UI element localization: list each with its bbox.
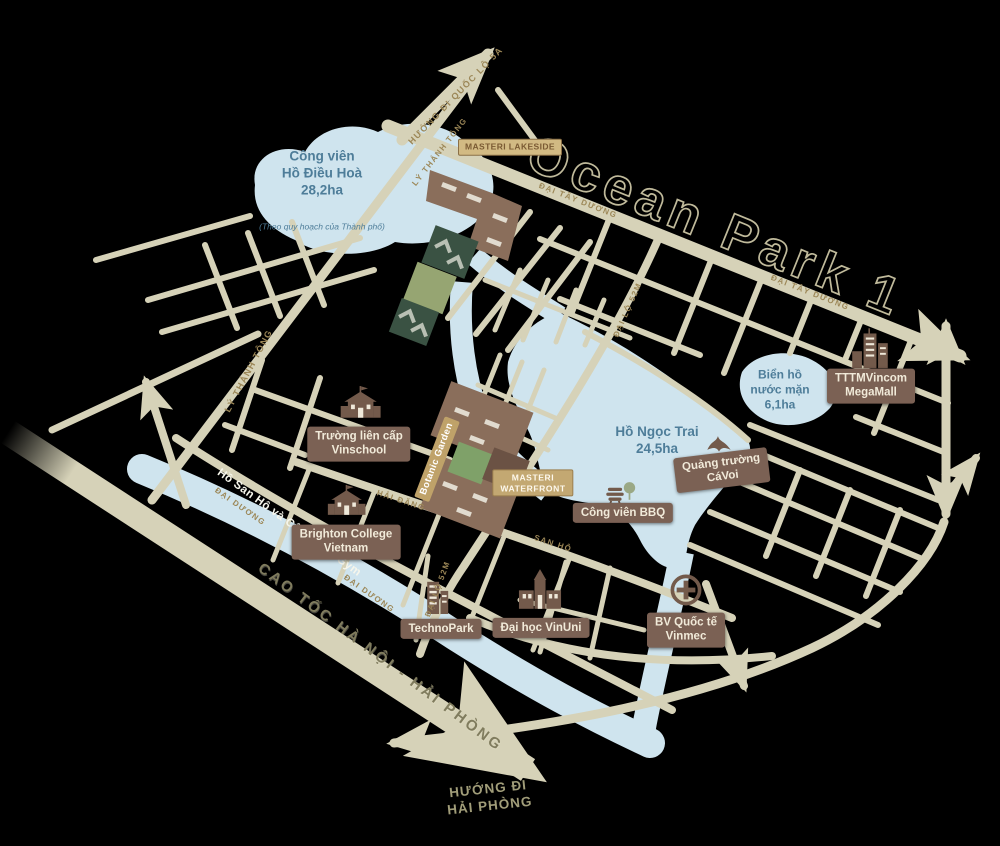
masteri-waterfront-tag: MASTERI WATERFRONT bbox=[492, 469, 573, 496]
poi-vincom-megamall: TTTMVincom MegaMall bbox=[827, 369, 915, 404]
poi-vinuni: Đại học VinUni bbox=[493, 618, 590, 638]
map-geometry bbox=[0, 0, 1000, 846]
lake-bien-ho-label: Biển hồ nước mặn 6,1ha bbox=[750, 368, 809, 413]
poi-bbq-park: Công viên BBQ bbox=[573, 503, 673, 523]
school-icon bbox=[341, 386, 381, 418]
masteri-lakeside-tag: MASTERI LAKESIDE bbox=[458, 139, 562, 156]
lake-note: (Theo quy hoạch của Thành phố) bbox=[259, 221, 385, 232]
ocean-park-masterplan-map: Ocean Park 1 Công viên Hồ Điều Hoà 28,2h… bbox=[0, 0, 1000, 846]
poi-brighton-college: Brighton College Vietnam bbox=[292, 525, 401, 560]
poi-vinschool: Trường liên cấp Vinschool bbox=[307, 427, 410, 462]
poi-vinmec: BV Quốc tế Vinmec bbox=[647, 613, 725, 648]
school-icon bbox=[328, 485, 366, 515]
lake-name: Hồ Ngọc Trai 24,5ha bbox=[615, 424, 698, 458]
lake-dieu-hoa-label: Công viên Hồ Điều Hoà 28,2ha (Theo quy h… bbox=[259, 128, 385, 251]
lake-name: Công viên Hồ Điều Hoà 28,2ha bbox=[259, 148, 385, 199]
poi-technopark: TechnoPark bbox=[401, 619, 482, 639]
